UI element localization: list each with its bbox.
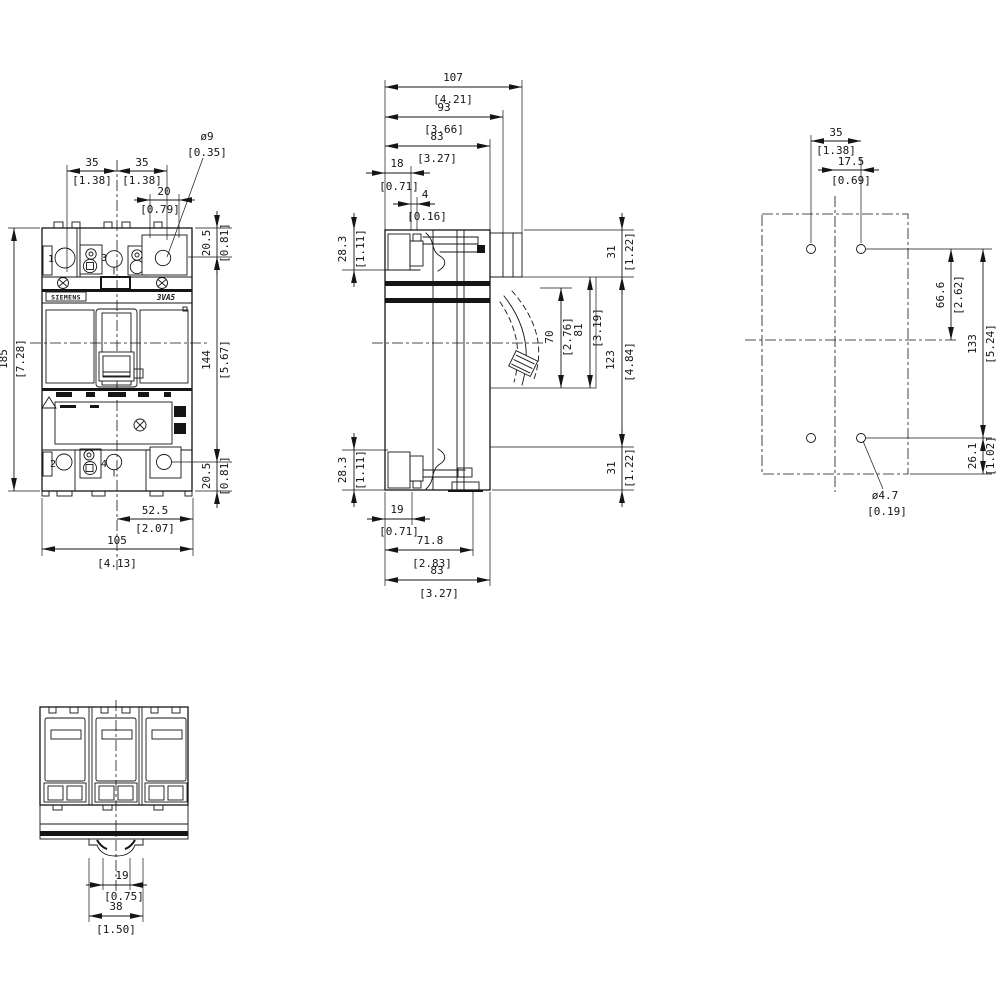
dim-mm: 93: [437, 101, 450, 114]
dim-inch: [3.27]: [417, 152, 457, 165]
dim-mount-pitch-35: 35 [1.38]: [811, 126, 861, 157]
dim-inch: [1.22]: [623, 448, 636, 488]
dim-mm: 19: [115, 869, 128, 882]
dim-mm: 31: [605, 245, 618, 258]
dim-inch: [0.16]: [407, 210, 447, 223]
dim-mm: ø4.7: [872, 489, 899, 502]
front-body: SIEMENS 3VA5: [30, 160, 207, 570]
dim-side-terminal-top: 28.3 [1.11]: [336, 213, 367, 287]
dim-inch: [1.11]: [354, 450, 367, 490]
dim-inch: [0.71]: [379, 525, 419, 538]
dim-mm: 31: [605, 461, 618, 474]
bottom-body: [40, 700, 188, 895]
dim-mount-offset-17-5: 17.5 [0.69]: [818, 155, 879, 187]
mounting-hole: [857, 434, 866, 443]
dim-bottom-rail-foot-38: 38 [1.50]: [89, 900, 143, 936]
dim-mount-center-66-6: 66.6 [2.62]: [934, 249, 965, 340]
mounting-dimensions: 35 [1.38] 17.5 [0.69] 66.6 [2.62] 133 [5…: [811, 126, 997, 518]
dim-mount-pitch-133: 133 [5.24]: [966, 249, 997, 438]
dim-mm: 185: [0, 349, 10, 369]
dimension-drawing-page: SIEMENS 3VA5: [0, 0, 1000, 1000]
dim-side-handle-81: 81 [3.19]: [572, 277, 604, 388]
dim-inch: [1.50]: [96, 923, 136, 936]
dim-front-body-height: 144 [5.67]: [200, 257, 231, 462]
dim-inch: [1.38]: [72, 174, 112, 187]
dim-mm: 105: [107, 534, 127, 547]
dim-mm: 133: [966, 334, 979, 354]
dim-mm: 144: [200, 350, 213, 370]
dim-mm: 28.3: [336, 236, 349, 263]
terminal-3-label: 3: [101, 253, 107, 264]
bottom-view: 19 [0.75] 38 [1.50]: [40, 700, 188, 936]
terminal-1-label: 1: [48, 254, 54, 265]
dim-mm: 35: [829, 126, 842, 139]
pole-3: [146, 718, 186, 781]
dim-inch: [1.11]: [354, 229, 367, 269]
dim-inch: [0.81]: [218, 456, 231, 496]
terminal-2-label: 2: [50, 459, 56, 470]
dim-inch: [4.13]: [97, 557, 137, 570]
dim-front-bottom-terminal-height: 20.5 [0.81]: [200, 445, 231, 508]
terminal-3-hole: [106, 251, 123, 268]
terminal-1-hole: [55, 248, 75, 268]
side-dimensions: 107 [4.21] 93 [3.66] 83 [3.27] 18 [0.71]: [336, 71, 636, 600]
dim-inch: [1.02]: [984, 436, 997, 476]
breaker-side-outline: [385, 230, 490, 490]
dim-mm: 38: [109, 900, 122, 913]
dim-inch: [2.07]: [135, 522, 175, 535]
dim-inch: [7.28]: [14, 339, 27, 379]
dim-inch: [5.24]: [984, 324, 997, 364]
dim-side-bottom-31: 31 [1.22]: [605, 430, 636, 507]
dim-mm: 107: [443, 71, 463, 84]
dim-bottom-rail-slot-19: 19 [0.75]: [86, 869, 147, 903]
rear-shroud: [490, 233, 522, 277]
dim-inch: [3.27]: [419, 587, 459, 600]
dim-front-lug-width: 20 [0.79]: [134, 185, 195, 216]
dim-side-depth-93: 93 [3.66]: [385, 101, 503, 136]
top-lug-box: [142, 235, 187, 275]
dim-mm: ø9: [200, 130, 213, 143]
side-view: 107 [4.21] 93 [3.66] 83 [3.27] 18 [0.71]: [336, 71, 636, 600]
dim-mm: 70: [543, 330, 556, 343]
dim-mm: 20: [157, 185, 170, 198]
dim-mm: 26.1: [966, 443, 979, 470]
dim-mm: 66.6: [934, 282, 947, 309]
dim-front-width-half: 52.5 [2.07]: [117, 504, 193, 535]
dim-mm: 4: [422, 188, 429, 201]
dim-side-handle-70: 70 [2.76]: [543, 288, 574, 388]
mounting-hole: [857, 245, 866, 254]
pole-1: [45, 718, 85, 781]
side-body: [372, 230, 596, 491]
terminal-4-hole: [106, 454, 121, 469]
dim-front-pitch-b: 35 [1.38]: [117, 156, 167, 187]
dim-front-top-terminal-height: 20.5 [0.81]: [200, 211, 231, 274]
dim-inch: [0.69]: [831, 174, 871, 187]
terminal-4-label: 4: [101, 459, 107, 470]
terminal-2-hole: [56, 454, 72, 470]
dim-mm: 19: [390, 503, 403, 516]
dim-side-terminal-bottom: 28.3 [1.11]: [336, 433, 367, 507]
dim-inch: [0.19]: [867, 505, 907, 518]
dim-mm: 35: [135, 156, 148, 169]
mounting-view: 35 [1.38] 17.5 [0.69] 66.6 [2.62] 133 [5…: [745, 126, 997, 518]
dim-mm: 71.8: [417, 534, 444, 547]
mounting-hole: [807, 434, 816, 443]
dim-inch: [1.38]: [122, 174, 162, 187]
dim-inch: [1.22]: [623, 232, 636, 272]
dim-inch: [2.62]: [952, 275, 965, 315]
dim-side-depth-107: 107 [4.21]: [385, 71, 522, 106]
dim-mm: 83: [430, 564, 443, 577]
dim-inch: [0.71]: [379, 180, 419, 193]
dim-inch: [0.79]: [140, 203, 180, 216]
brand-label: SIEMENS: [51, 294, 81, 302]
dim-side-mid-123: 123 [4.84]: [604, 277, 636, 447]
dim-mm: 20.5: [200, 463, 213, 490]
dim-side-foot-19: 19 [0.71]: [367, 503, 430, 538]
dim-mm: 81: [572, 323, 585, 336]
dim-front-pitch-a: 35 [1.38]: [67, 156, 117, 187]
dim-mm: 18: [390, 157, 403, 170]
warning-triangle-icon: [42, 397, 56, 408]
side-toggle-handle: [509, 351, 538, 377]
dim-side-depth-71-8: 71.8 [2.83]: [385, 534, 473, 570]
dim-front-height-total: 185 [7.28]: [0, 228, 27, 491]
bottom-lug-box: [150, 447, 181, 478]
dim-side-top-31: 31 [1.22]: [605, 213, 636, 294]
front-view: SIEMENS 3VA5: [0, 130, 232, 570]
dim-inch: [4.84]: [623, 342, 636, 382]
dim-inch: [5.67]: [218, 340, 231, 380]
dim-mm: 17.5: [838, 155, 865, 168]
dim-mount-edge-26-1: 26.1 [1.02]: [966, 436, 997, 476]
bottom-dimensions: 19 [0.75] 38 [1.50]: [86, 858, 147, 936]
dim-mm: 35: [85, 156, 98, 169]
dim-mm: 20.5: [200, 230, 213, 257]
model-label: 3VA5: [156, 293, 176, 302]
dim-mm: 83: [430, 130, 443, 143]
dim-mm: 123: [604, 350, 617, 370]
mounting-hole: [807, 245, 816, 254]
dimension-drawing: SIEMENS 3VA5: [0, 0, 1000, 1000]
dim-mm: 52.5: [142, 504, 169, 517]
dim-front-width-total: 105 [4.13]: [42, 534, 193, 570]
rating-plate: [55, 402, 172, 444]
dim-mm: 28.3: [336, 457, 349, 484]
dim-inch: [0.81]: [218, 223, 231, 263]
dim-side-offset-4: 4 [0.16]: [393, 188, 447, 223]
dim-inch: [0.35]: [187, 146, 227, 159]
dim-side-depth-bottom-83: 83 [3.27]: [385, 564, 490, 600]
front-dimensions: 35 [1.38] 35 [1.38] 20 [0.79] ø9 [0.35]: [0, 130, 232, 570]
dim-mount-hole-dia: ø4.7 [0.19]: [863, 441, 907, 518]
dim-inch: [3.19]: [591, 308, 604, 348]
